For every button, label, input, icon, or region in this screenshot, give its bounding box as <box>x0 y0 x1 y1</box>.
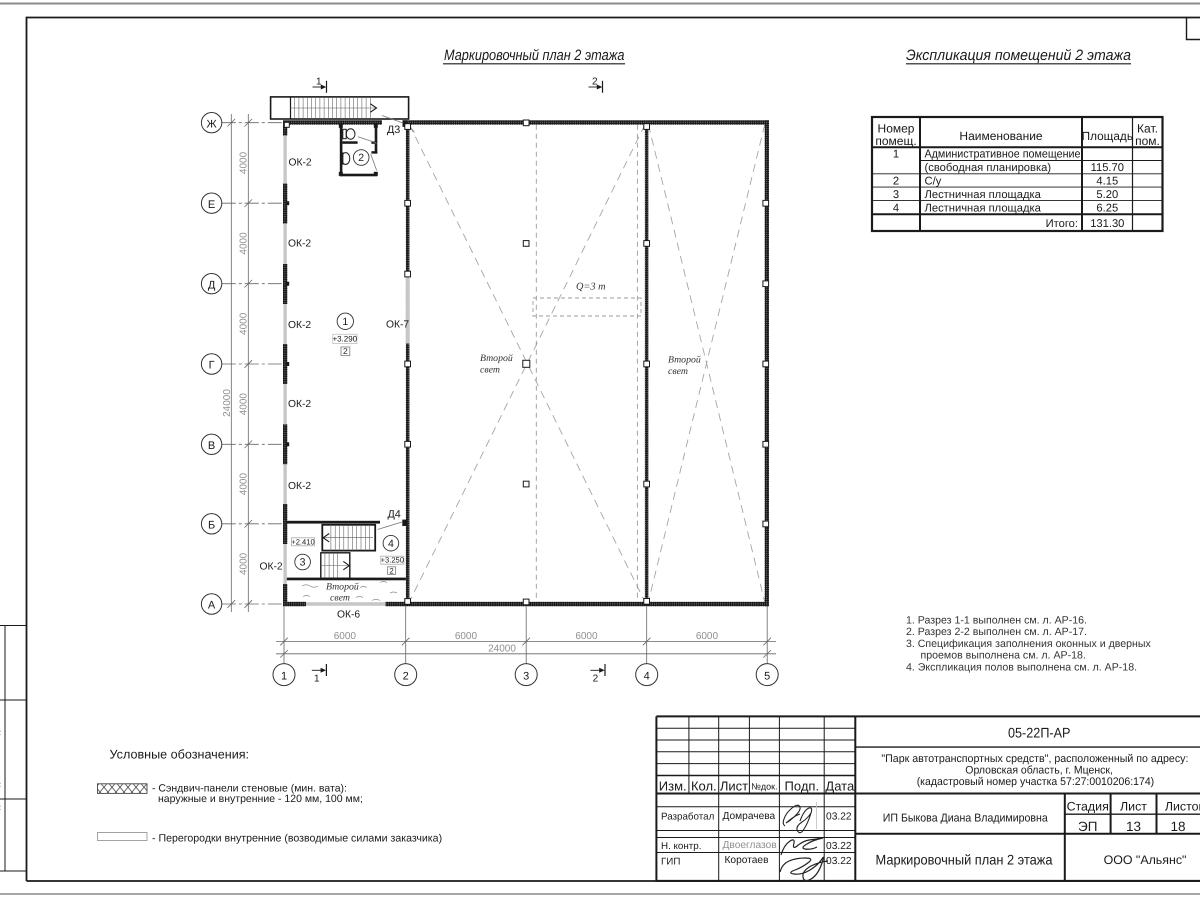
svg-text:+3.250: +3.250 <box>381 556 404 565</box>
svg-text:ЭП: ЭП <box>1078 819 1097 834</box>
svg-text:Е: Е <box>208 199 215 211</box>
svg-text:наружные и внутренние - 120 мм: наружные и внутренние - 120 мм, 100 мм; <box>158 793 363 805</box>
svg-text:№док.: №док. <box>751 782 777 792</box>
svg-text:Н. контр.: Н. контр. <box>661 841 701 852</box>
svg-text:4000: 4000 <box>239 151 250 174</box>
svg-text:24000: 24000 <box>222 389 233 417</box>
svg-text:ОК-2: ОК-2 <box>288 481 311 492</box>
svg-text:2: 2 <box>343 346 348 356</box>
svg-text:Лист: Лист <box>1120 800 1147 814</box>
svg-text:6000: 6000 <box>696 631 719 642</box>
svg-text:(свободная планировка): (свободная планировка) <box>925 162 1052 174</box>
svg-text:4000: 4000 <box>239 393 250 416</box>
svg-text:4: 4 <box>893 202 899 214</box>
svg-text:Д4: Д4 <box>388 508 401 520</box>
svg-text:Экспликация помещений 2 этажа: Экспликация помещений 2 этажа <box>906 47 1131 64</box>
svg-text:"Парк автотранспортных средств: "Парк автотранспортных средств", располо… <box>881 753 1188 765</box>
svg-text:Площадь: Площадь <box>1082 129 1133 143</box>
svg-text:свет: свет <box>668 366 688 377</box>
svg-text::: : <box>0 728 1 737</box>
svg-text:2: 2 <box>389 566 393 575</box>
svg-text:3: 3 <box>523 670 529 682</box>
svg-text:2: 2 <box>593 674 599 685</box>
svg-text:(кадастровый номер участка 57:: (кадастровый номер участка 57:27:0010206… <box>917 776 1154 788</box>
svg-text:ИП Быкова Диана Владимировна: ИП Быкова Диана Владимировна <box>883 813 1049 825</box>
svg-text:1: 1 <box>893 149 899 161</box>
svg-text:4000: 4000 <box>239 312 250 335</box>
svg-text:6000: 6000 <box>455 631 478 642</box>
svg-text:С/у: С/у <box>925 175 942 187</box>
svg-text:Подп.: Подп. <box>785 779 820 794</box>
svg-text:1: 1 <box>281 670 287 682</box>
svg-text:Б: Б <box>208 520 215 532</box>
svg-text:18: 18 <box>1170 819 1185 834</box>
svg-text:115.70: 115.70 <box>1091 162 1124 174</box>
svg-text:3: 3 <box>893 189 899 201</box>
svg-text:Второй: Второй <box>480 353 513 364</box>
svg-text:3. Спецификация заполнения око: 3. Спецификация заполнения оконных и две… <box>906 638 1152 650</box>
svg-text:Условные обозначения:: Условные обозначения: <box>110 748 250 762</box>
svg-text:ОК-7: ОК-7 <box>386 320 409 331</box>
svg-text:Лист: Лист <box>720 779 748 794</box>
svg-text:проемов выполнена см. л. АР-18: проемов выполнена см. л. АР-18. <box>921 650 1086 662</box>
svg-text:Итого:: Итого: <box>1046 218 1078 230</box>
svg-text:свет: свет <box>330 593 350 604</box>
svg-text:1: 1 <box>342 316 348 328</box>
svg-text:4.15: 4.15 <box>1096 175 1118 187</box>
svg-text:4000: 4000 <box>239 552 250 575</box>
svg-text:Орловская область, г. Мценск,: Орловская область, г. Мценск, <box>965 764 1113 776</box>
svg-text:5: 5 <box>764 670 770 682</box>
svg-text:Второй: Второй <box>326 582 359 593</box>
svg-text:ОК-6: ОК-6 <box>337 609 360 620</box>
svg-text:03.22: 03.22 <box>826 841 852 852</box>
svg-text:Наименование: Наименование <box>959 129 1043 143</box>
svg-text:2: 2 <box>893 175 899 187</box>
svg-text:4: 4 <box>644 670 650 682</box>
svg-text:Q=3 т: Q=3 т <box>576 282 606 293</box>
svg-text:6000: 6000 <box>575 631 598 642</box>
svg-text:Д3: Д3 <box>387 124 400 136</box>
svg-text:6000: 6000 <box>334 631 357 642</box>
svg-text:05-22П-АР: 05-22П-АР <box>1008 724 1071 740</box>
svg-text:- Перегородки внутренние (возв: - Перегородки внутренние (возводимые сил… <box>152 833 442 845</box>
svg-text:Стадия: Стадия <box>1067 800 1109 814</box>
svg-text:Г: Г <box>209 360 215 372</box>
svg-text:5.20: 5.20 <box>1096 189 1118 201</box>
svg-text:В: В <box>208 440 215 452</box>
svg-text:ОК-2: ОК-2 <box>288 320 311 331</box>
svg-text:6.25: 6.25 <box>1096 202 1118 214</box>
svg-text:свет: свет <box>480 365 500 376</box>
svg-text:Домрачева: Домрачева <box>723 811 776 822</box>
svg-text:Ж: Ж <box>207 118 217 130</box>
svg-text:03.22: 03.22 <box>826 856 852 867</box>
svg-text:Административное помещение: Административное помещение <box>925 148 1081 161</box>
svg-text:Лестничная площадка: Лестничная площадка <box>925 202 1042 214</box>
svg-text:ГИП: ГИП <box>661 857 680 868</box>
svg-text:2: 2 <box>403 670 409 682</box>
svg-text:+3.290: +3.290 <box>332 335 357 344</box>
svg-text:помещ.: помещ. <box>875 134 916 148</box>
svg-text:1: 1 <box>314 674 320 685</box>
svg-text::: : <box>0 803 1 812</box>
svg-text:Второй: Второй <box>668 355 701 366</box>
svg-text:Кол.: Кол. <box>691 779 717 794</box>
svg-text:4: 4 <box>388 538 394 550</box>
svg-text:Двоеглазов: Двоеглазов <box>723 840 777 851</box>
svg-text:03.22: 03.22 <box>826 812 852 823</box>
svg-text:ОК-2: ОК-2 <box>288 399 311 410</box>
svg-text:Коротаев: Коротаев <box>725 855 769 866</box>
svg-text:2. Разрез 2-2 выполнен см. л.: 2. Разрез 2-2 выполнен см. л. АР-17. <box>906 626 1087 638</box>
svg-text:4. Экспликация полов выполнена: 4. Экспликация полов выполнена см. л. АР… <box>906 661 1137 673</box>
svg-text:Дата: Дата <box>825 779 855 794</box>
svg-text:Изм.: Изм. <box>659 779 687 794</box>
svg-text:2: 2 <box>358 152 364 164</box>
svg-text:Маркировочный план 2 этажа: Маркировочный план 2 этажа <box>876 852 1053 868</box>
svg-text:1. Разрез 1-1 выполнен см. л.: 1. Разрез 1-1 выполнен см. л. АР-16. <box>906 615 1087 627</box>
svg-text:+2.410: +2.410 <box>291 537 314 546</box>
svg-text:13: 13 <box>1126 819 1141 834</box>
svg-text:4000: 4000 <box>239 232 250 255</box>
svg-text:Лестничная площадка: Лестничная площадка <box>925 189 1042 201</box>
svg-text:ОК-2: ОК-2 <box>260 562 283 573</box>
svg-text:3: 3 <box>300 557 306 569</box>
svg-text::: : <box>0 780 1 789</box>
svg-text:ООО "Альянс": ООО "Альянс" <box>1104 853 1187 867</box>
svg-text:Листов: Листов <box>1165 800 1200 814</box>
svg-text:ОК-2: ОК-2 <box>289 158 312 169</box>
svg-text:пом.: пом. <box>1135 134 1160 148</box>
svg-text:Маркировочный план 2 этажа: Маркировочный план 2 этажа <box>444 47 625 64</box>
svg-text:131.30: 131.30 <box>1090 218 1124 230</box>
svg-text:24000: 24000 <box>488 644 516 655</box>
svg-text:ОК-2: ОК-2 <box>288 239 311 250</box>
svg-text:4000: 4000 <box>239 472 250 495</box>
svg-text:Д: Д <box>208 279 216 291</box>
svg-text:Разработал: Разработал <box>661 812 715 823</box>
svg-text:А: А <box>208 600 216 612</box>
